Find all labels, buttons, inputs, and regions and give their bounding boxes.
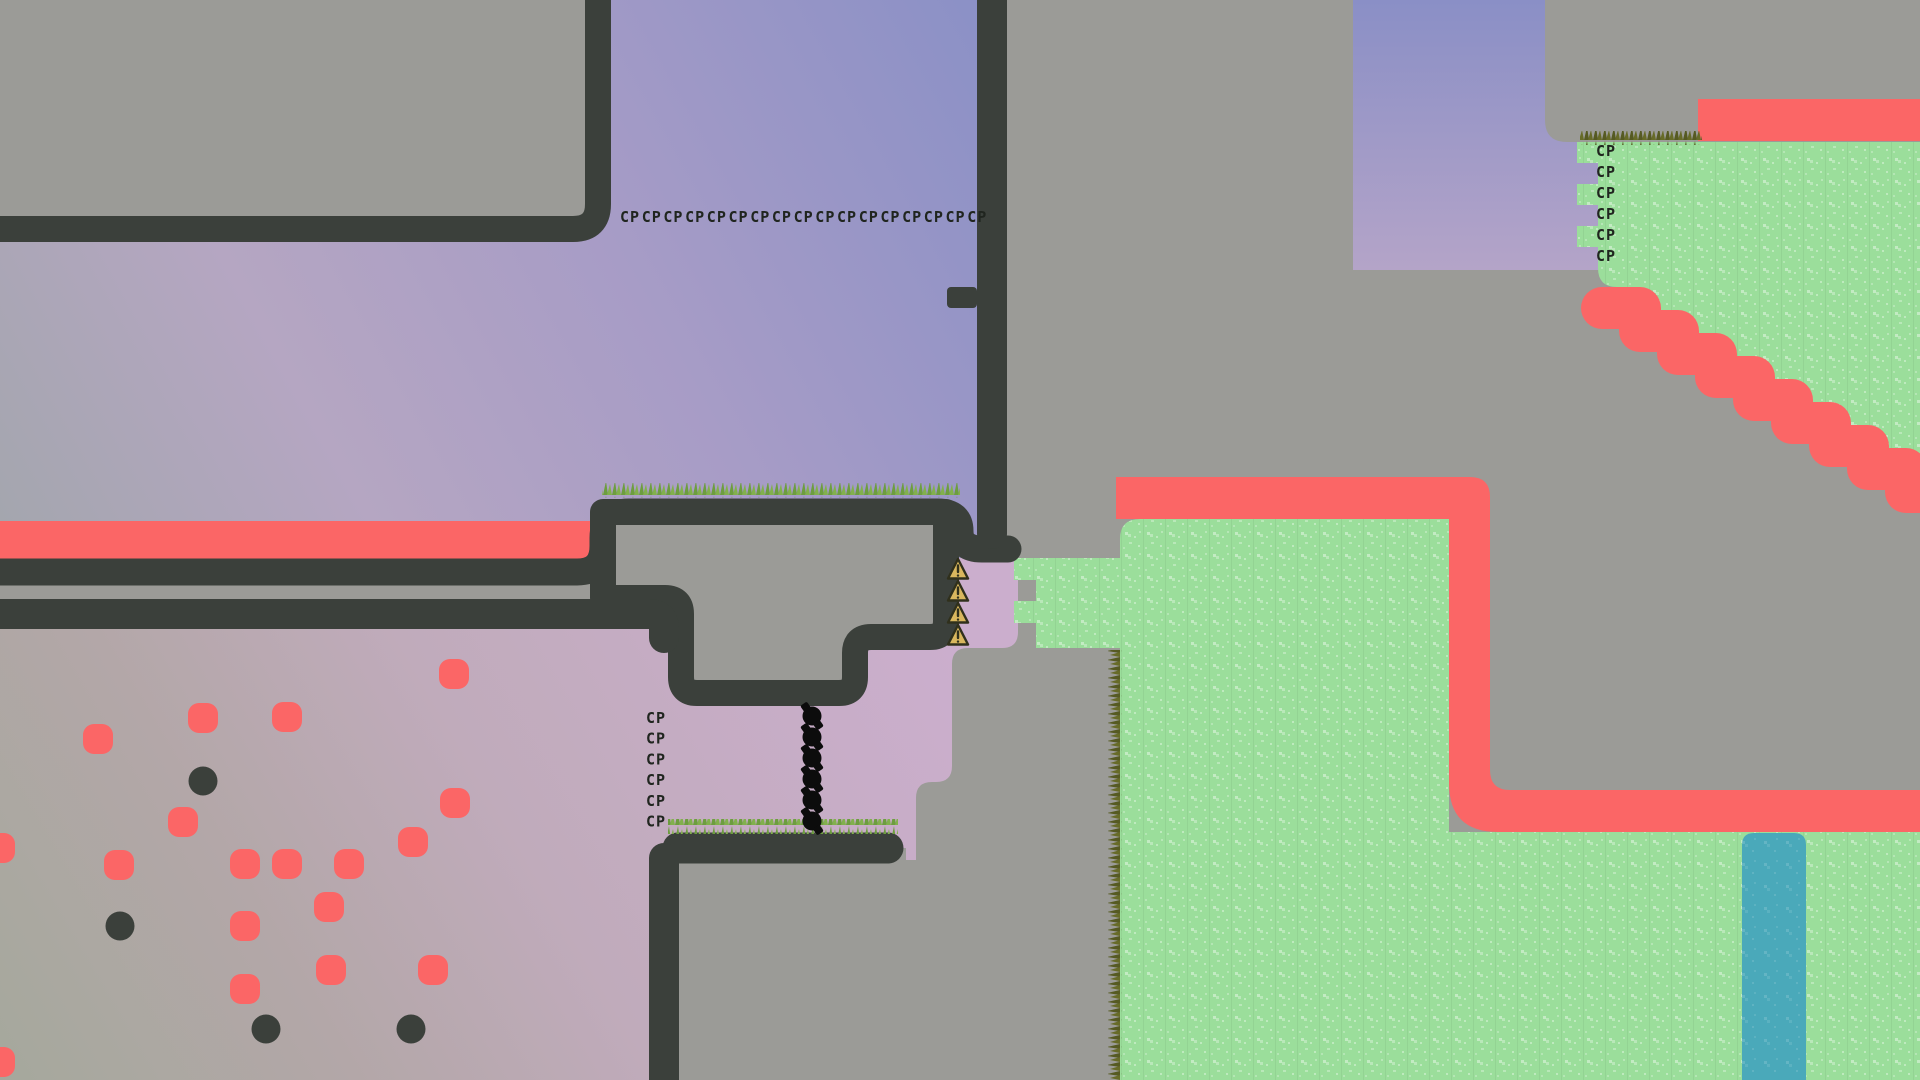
- grass-fringe-bottom: [668, 819, 898, 834]
- game-viewport[interactable]: CPCPCPCPCPCPCPCPCPCPCPCPCPCPCPCPCP CPCPC…: [0, 0, 1920, 1080]
- red-dot: [418, 955, 448, 985]
- checkpoint-label: CP: [815, 208, 835, 226]
- red-dot: [168, 807, 198, 837]
- checkpoint-label: CP: [1596, 205, 1616, 223]
- checkpoint-label: CP: [750, 208, 770, 226]
- checkpoint-label: CP: [837, 208, 857, 226]
- checkpoint-label: CP: [1596, 184, 1616, 202]
- checkpoint-label: CP: [902, 208, 922, 226]
- red-dot: [440, 788, 470, 818]
- red-dot: [83, 724, 113, 754]
- solid-block-topleft: [0, 0, 598, 229]
- checkpoint-label: CP: [880, 208, 900, 226]
- checkpoint-label: CP: [646, 730, 666, 748]
- red-dot: [272, 702, 302, 732]
- checkpoint-label: CP: [967, 208, 987, 226]
- checkpoint-label: CP: [924, 208, 944, 226]
- wall-notch-block: [947, 287, 977, 308]
- checkpoint-label: CP: [646, 792, 666, 810]
- red-dot: [188, 703, 218, 733]
- map-scene: CPCPCPCPCPCPCPCPCPCPCPCPCPCPCPCPCP CPCPC…: [0, 0, 1920, 1080]
- red-dot: [0, 1047, 15, 1077]
- checkpoint-label: CP: [646, 813, 666, 831]
- checkpoint-label: CP: [772, 208, 792, 226]
- red-dot: [314, 892, 344, 922]
- grass-fringe-left-edge: [1108, 650, 1122, 1080]
- red-dot: [0, 833, 15, 863]
- red-dot: [439, 659, 469, 689]
- dark-dot: [106, 912, 135, 941]
- red-dot: [230, 974, 260, 1004]
- red-dot: [272, 849, 302, 879]
- checkpoint-label: CP: [620, 208, 640, 226]
- red-dot: [104, 850, 134, 880]
- solid-block-bottomcenter: [664, 848, 906, 1080]
- red-dot: [230, 849, 260, 879]
- checkpoint-label: CP: [646, 750, 666, 768]
- kill-stripe-left: [0, 521, 592, 561]
- checkpoint-label: CP: [685, 208, 705, 226]
- red-dot: [398, 827, 428, 857]
- checkpoint-label: CP: [1596, 142, 1616, 160]
- checkpoint-label: CP: [946, 208, 966, 226]
- checkpoint-label: CP: [707, 208, 727, 226]
- checkpoint-label: CP: [1596, 163, 1616, 181]
- checkpoint-label: CP: [859, 208, 879, 226]
- dark-dot: [397, 1015, 426, 1044]
- checkpoint-label: CP: [663, 208, 683, 226]
- red-dot: [230, 911, 260, 941]
- checkpoint-label: CP: [729, 208, 749, 226]
- water-strip: [1742, 833, 1806, 1080]
- checkpoint-label: CP: [1596, 226, 1616, 244]
- checkpoint-label: CP: [642, 208, 662, 226]
- checkpoint-label: CP: [1596, 247, 1616, 265]
- red-dot: [316, 955, 346, 985]
- dark-dot: [189, 767, 218, 796]
- sky-pocket-bottomleft: [0, 596, 700, 1080]
- grass-fringe-top: [602, 483, 960, 498]
- checkpoint-label: CP: [794, 208, 814, 226]
- red-dot: [334, 849, 364, 879]
- dark-dot: [252, 1015, 281, 1044]
- checkpoint-label: CP: [646, 709, 666, 727]
- checkpoint-label: CP: [646, 771, 666, 789]
- checkpoint-row-top: CPCPCPCPCPCPCPCPCPCPCPCPCPCPCPCPCP: [620, 208, 987, 226]
- kill-stripe-topright: [1698, 99, 1920, 141]
